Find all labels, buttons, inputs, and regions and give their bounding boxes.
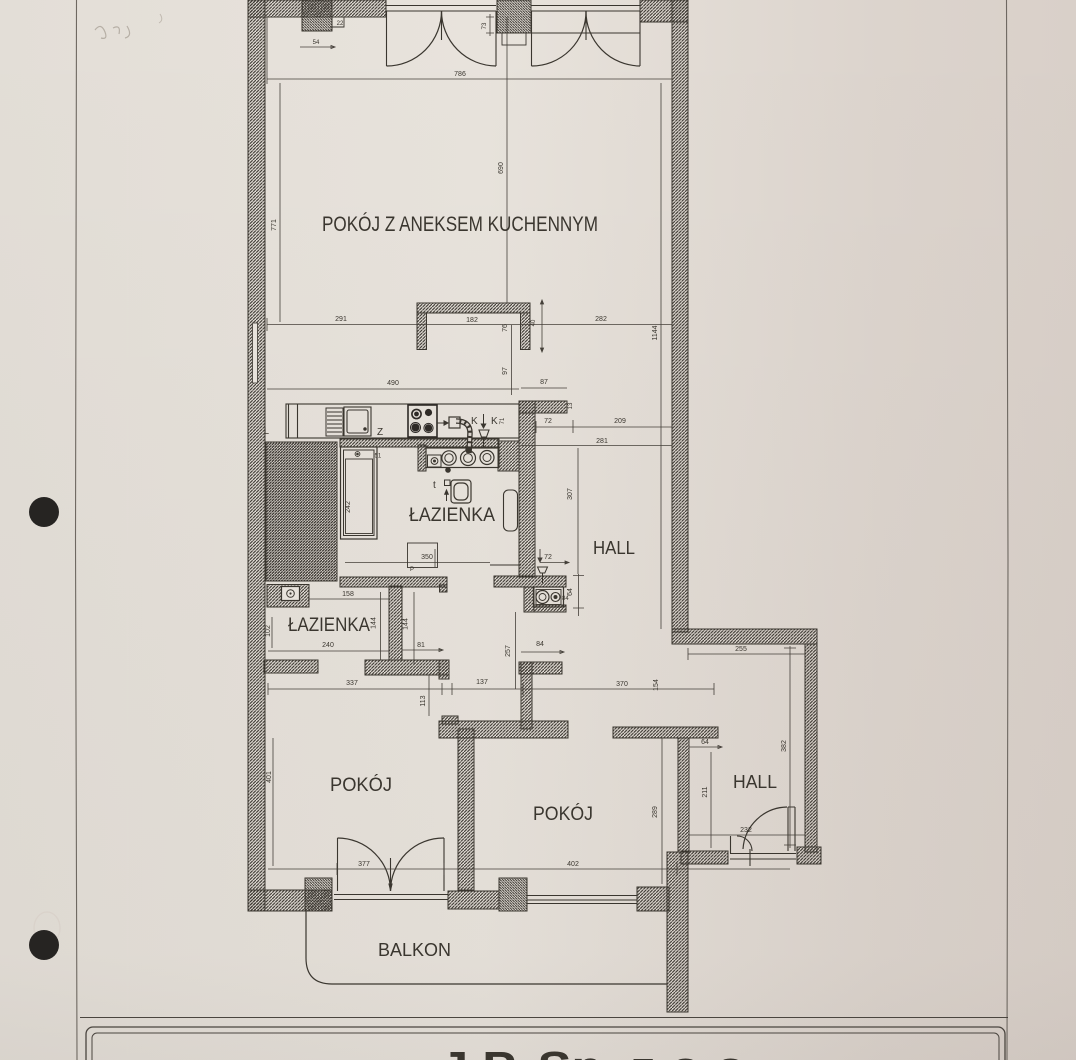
svg-text:84: 84 <box>562 596 569 602</box>
svg-text:144: 144 <box>371 617 378 629</box>
svg-text:144: 144 <box>403 618 410 630</box>
svg-text:211: 211 <box>702 786 709 797</box>
svg-text:350: 350 <box>421 554 433 561</box>
svg-text:113: 113 <box>420 695 427 706</box>
svg-text:289: 289 <box>652 806 659 818</box>
svg-text:281: 281 <box>596 438 608 445</box>
svg-text:257: 257 <box>505 645 512 657</box>
svg-text:54: 54 <box>313 40 320 46</box>
svg-text:64: 64 <box>567 588 574 596</box>
svg-text:337: 337 <box>346 680 358 687</box>
svg-text:182: 182 <box>466 317 478 324</box>
svg-text:POKÓJ Z ANEKSEM KUCHENNYM: POKÓJ Z ANEKSEM KUCHENNYM <box>322 213 598 236</box>
svg-text:13: 13 <box>568 402 574 409</box>
svg-text:786: 786 <box>454 71 466 78</box>
svg-text:51: 51 <box>375 454 382 460</box>
svg-text:POKÓJ: POKÓJ <box>330 774 392 796</box>
svg-text:ŁAZIENKA: ŁAZIENKA <box>409 505 495 526</box>
svg-text:97: 97 <box>502 367 509 375</box>
svg-text:t: t <box>433 480 436 491</box>
svg-text:240: 240 <box>322 642 334 649</box>
svg-text:Z: Z <box>377 427 383 438</box>
svg-text:40: 40 <box>531 319 537 326</box>
svg-text:282: 282 <box>595 316 607 323</box>
svg-text:71: 71 <box>500 417 506 424</box>
svg-text:L: L <box>264 426 269 436</box>
svg-text:81: 81 <box>417 642 425 649</box>
svg-text:P: P <box>410 567 414 573</box>
svg-text:401: 401 <box>266 771 273 783</box>
svg-text:64: 64 <box>701 739 709 746</box>
svg-text:72: 72 <box>544 418 552 425</box>
svg-text:HALL: HALL <box>593 538 635 558</box>
svg-text:73: 73 <box>482 22 488 29</box>
svg-text:K: K <box>491 416 498 427</box>
svg-text:K: K <box>471 416 478 427</box>
svg-text:84: 84 <box>536 641 544 648</box>
svg-text:22: 22 <box>337 21 344 27</box>
svg-text:72: 72 <box>544 554 552 561</box>
svg-text:490: 490 <box>387 380 399 387</box>
svg-text:158: 158 <box>342 591 354 598</box>
svg-text:154: 154 <box>653 679 660 691</box>
svg-text:291: 291 <box>335 316 347 323</box>
svg-text:J.P. Sp. z o.o.: J.P. Sp. z o.o. <box>440 1043 760 1060</box>
svg-text:POKÓJ: POKÓJ <box>533 803 593 825</box>
svg-text:HALL: HALL <box>733 772 777 792</box>
svg-text:771: 771 <box>271 219 278 231</box>
svg-text:382: 382 <box>781 740 788 752</box>
svg-text:1144: 1144 <box>652 325 659 340</box>
svg-text:87: 87 <box>540 379 548 386</box>
svg-text:402: 402 <box>567 861 579 868</box>
svg-text:ŁAZIENKA: ŁAZIENKA <box>288 615 370 636</box>
svg-text:102: 102 <box>265 625 272 637</box>
svg-text:232: 232 <box>740 827 752 834</box>
svg-text:370: 370 <box>616 681 628 688</box>
svg-text:137: 137 <box>476 679 488 686</box>
svg-text:209: 209 <box>614 418 626 425</box>
svg-text:BALKON: BALKON <box>378 940 451 960</box>
svg-text:307: 307 <box>567 488 574 500</box>
svg-text:76: 76 <box>502 324 509 332</box>
svg-text:690: 690 <box>498 162 505 174</box>
svg-text:377: 377 <box>358 861 370 868</box>
svg-text:242: 242 <box>345 501 352 513</box>
svg-text:255: 255 <box>735 646 747 653</box>
